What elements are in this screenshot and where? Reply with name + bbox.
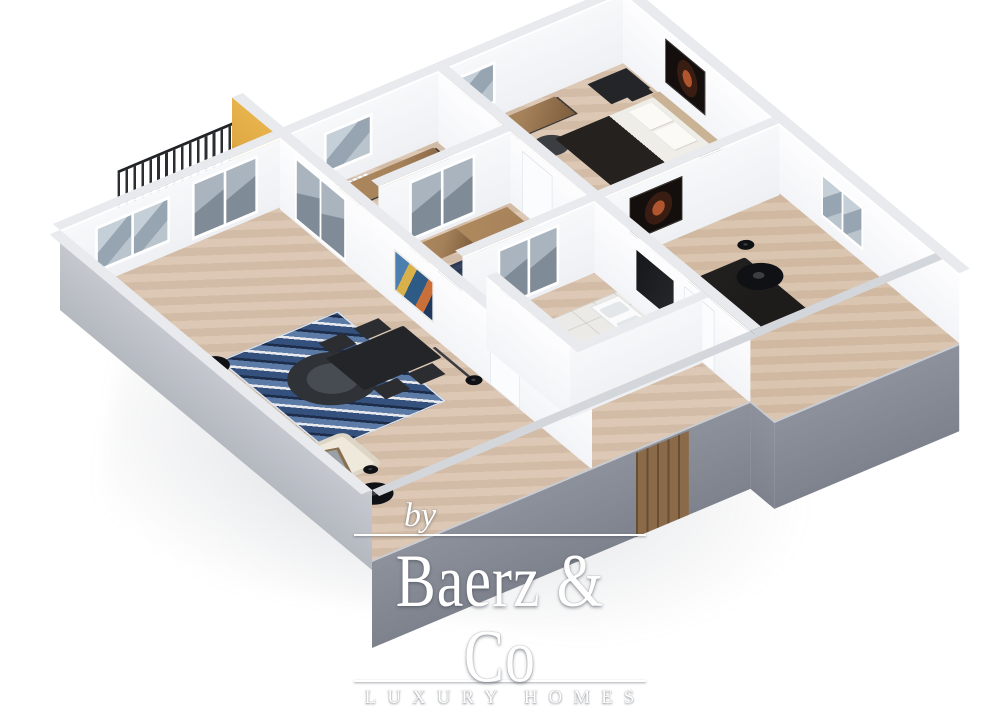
window-pane	[823, 177, 841, 230]
watermark-by: by	[354, 498, 646, 534]
window-pane	[98, 215, 131, 269]
window-pane	[134, 200, 167, 254]
office-1-window	[324, 113, 372, 175]
floor-plan-scene: by Baerz & Co LUXURY HOMES	[0, 0, 1000, 710]
glass-pane	[321, 181, 344, 258]
glass-pane	[226, 159, 255, 223]
window-pane	[327, 117, 370, 171]
glass-pane	[530, 228, 557, 293]
glass-pane	[412, 171, 441, 237]
watermark-rule	[354, 534, 646, 536]
glass-pane	[297, 161, 320, 238]
glass-pane	[444, 158, 473, 224]
watermark: by Baerz & Co LUXURY HOMES	[354, 498, 646, 710]
front-step-wall	[750, 401, 774, 509]
watermark-brand: Baerz & Co	[354, 543, 646, 694]
sink	[599, 301, 631, 319]
window-pane	[843, 193, 861, 246]
glass-pane	[195, 172, 224, 236]
